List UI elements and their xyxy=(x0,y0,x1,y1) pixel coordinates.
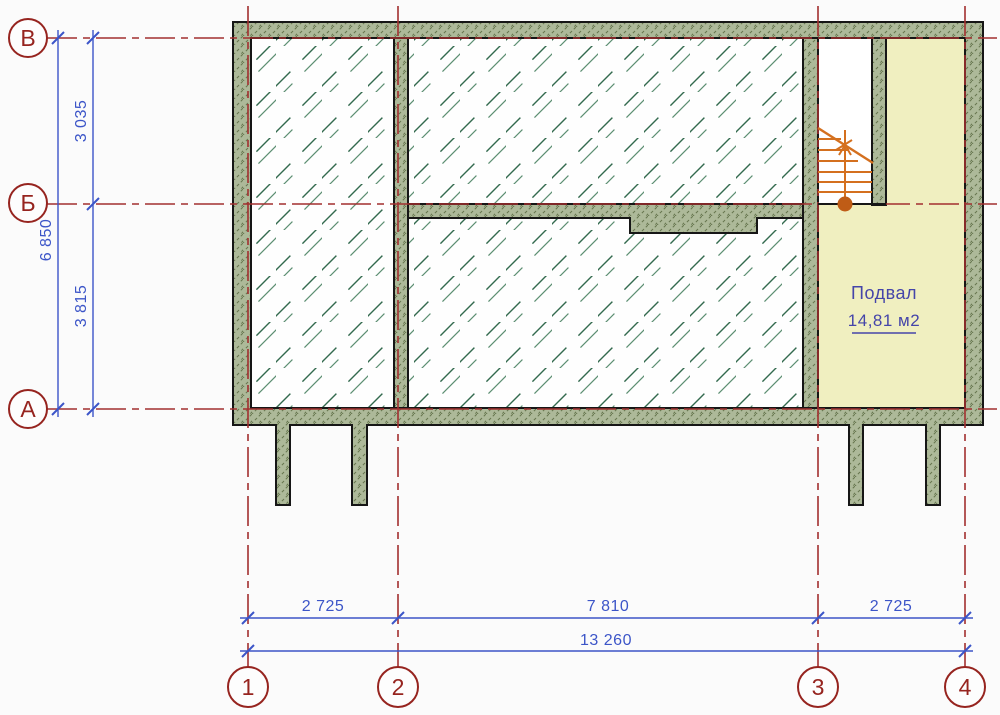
axis-label-3: 3 xyxy=(812,674,825,700)
stair-stub-wall xyxy=(872,38,886,205)
room-area-text: 14,81 м2 xyxy=(848,311,920,330)
column-axis-bubbles: 1 2 3 4 xyxy=(228,667,985,707)
stair-start-marker xyxy=(838,197,853,212)
axis-label-a: А xyxy=(20,396,36,422)
axis-label-b: Б xyxy=(20,190,35,216)
dim-left-segment-1: 3 035 xyxy=(73,100,90,143)
floor-plan-canvas: 6 850 3 035 3 815 2 725 7 810 2 725 13 2… xyxy=(0,0,1000,715)
interior-wall-axis-3 xyxy=(803,38,818,408)
dim-bottom-total: 13 260 xyxy=(580,632,632,649)
axis-label-2: 2 xyxy=(392,674,405,700)
axis-label-4: 4 xyxy=(959,674,972,700)
dim-bottom-segment-1: 2 725 xyxy=(302,598,345,615)
room-left xyxy=(251,38,394,408)
dim-bottom-segment-2: 7 810 xyxy=(587,598,630,615)
room-bottom-middle xyxy=(408,218,803,408)
left-dimensions: 6 850 3 035 3 815 xyxy=(38,30,99,417)
dim-left-segment-2: 3 815 xyxy=(73,285,90,328)
axis-label-v: В xyxy=(20,25,35,51)
basement-plan-drawing: 6 850 3 035 3 815 2 725 7 810 2 725 13 2… xyxy=(0,0,1000,715)
bottom-dimensions: 2 725 7 810 2 725 13 260 xyxy=(240,598,973,657)
dim-bottom-segment-3: 2 725 xyxy=(870,598,913,615)
interior-wall-axis-2 xyxy=(394,38,408,408)
room-name-text: Подвал xyxy=(851,283,917,303)
room-top-middle xyxy=(408,38,803,204)
axis-label-1: 1 xyxy=(242,674,255,700)
dim-left-total: 6 850 xyxy=(38,219,55,262)
